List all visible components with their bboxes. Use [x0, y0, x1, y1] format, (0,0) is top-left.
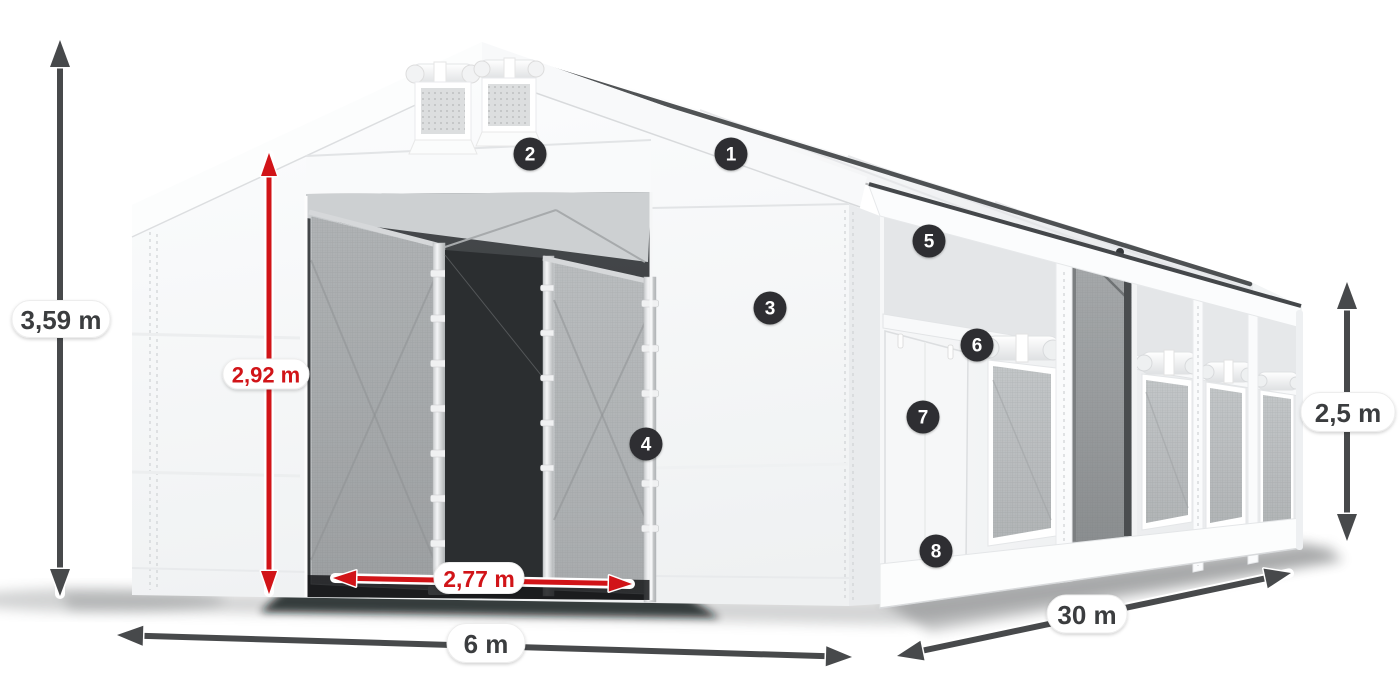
- door-bay-edge: [1072, 241, 1076, 541]
- arrowhead-up: [50, 40, 70, 67]
- interior-gap: [445, 250, 545, 596]
- window-mesh-texture: [993, 366, 1051, 538]
- window-mesh-texture: [1210, 388, 1242, 523]
- side-door-panel: [885, 331, 968, 570]
- callout-badge-2: 2: [514, 138, 547, 171]
- badge-number: 6: [972, 336, 983, 357]
- roll-end-cap: [406, 65, 424, 83]
- pole-clamp: [431, 360, 448, 367]
- gate-mesh-texture: [311, 216, 434, 590]
- vent-sill: [409, 140, 477, 154]
- door-strap: [898, 334, 903, 348]
- pole-clamp: [431, 450, 448, 457]
- callout-badge-4: 4: [630, 428, 663, 461]
- dimension-label-entrance-width: 2,77 m: [443, 566, 515, 592]
- pole-clamp: [431, 315, 448, 322]
- callout-badge-3: 3: [754, 292, 787, 325]
- callout-badge-6: 6: [961, 329, 994, 362]
- callout-badge-8: 8: [920, 535, 953, 568]
- badge-number: 3: [765, 299, 776, 320]
- pole-clamp: [431, 495, 448, 502]
- pole-clamp: [431, 540, 448, 547]
- window-mesh-texture: [1263, 395, 1291, 525]
- badge-number: 2: [525, 145, 536, 166]
- corner-wrap: [849, 204, 880, 606]
- roll-end-cap: [528, 61, 544, 77]
- arrowhead-left: [117, 626, 143, 646]
- arrowhead-down: [1337, 514, 1357, 541]
- gate-mesh-texture: [554, 262, 646, 594]
- vent-mesh-texture: [488, 84, 530, 126]
- dimension-side-wall-height: 2,5 m: [1301, 282, 1395, 541]
- inner-gate-left: [309, 212, 450, 595]
- diagram-canvas: 3,59 m 2,92 m 2,77 m 6 m 30 m: [0, 0, 1400, 700]
- pole-strip: [1132, 258, 1137, 536]
- door-strap: [948, 345, 953, 359]
- pole-clamp: [431, 405, 448, 412]
- gable-vent-window: [406, 62, 480, 154]
- roll-strap: [1016, 334, 1028, 362]
- pole-clamp: [431, 270, 448, 277]
- vent-mesh-texture: [421, 88, 465, 134]
- tent-dimension-diagram: 3,59 m 2,92 m 2,77 m 6 m 30 m: [0, 0, 1400, 700]
- callout-badge-7: 7: [907, 401, 940, 434]
- badge-number: 8: [931, 542, 942, 563]
- pole-strip: [1056, 262, 1072, 583]
- callout-badge-5: 5: [913, 225, 946, 258]
- roll-end-cap: [474, 61, 490, 77]
- badge-number: 7: [918, 408, 929, 429]
- open-door-mesh-texture: [1072, 241, 1132, 543]
- roll-strap: [1224, 360, 1233, 383]
- arrowhead-right: [826, 646, 852, 666]
- dimension-label-front-width: 6 m: [464, 629, 509, 659]
- gable-vent-window: [474, 58, 544, 146]
- door-pole: [1124, 260, 1131, 536]
- dimension-label-length: 30 m: [1057, 600, 1116, 630]
- badge-number: 1: [726, 145, 737, 166]
- dimension-total-height: 3,59 m: [12, 40, 110, 596]
- dimension-label-total-height: 3,59 m: [21, 305, 102, 335]
- side-open-door-bay: [1072, 241, 1132, 543]
- arrowhead-up: [1337, 282, 1357, 309]
- far-corner-pole: [1296, 310, 1303, 550]
- dimension-label-entrance-height: 2,92 m: [232, 363, 301, 388]
- entrance-opening: [306, 192, 659, 602]
- badge-number: 5: [924, 232, 935, 253]
- dimension-front-width: 6 m: [117, 624, 852, 667]
- badge-number: 4: [641, 435, 652, 456]
- dimension-label-side-wall-height: 2,5 m: [1315, 398, 1382, 428]
- roll-strap: [1164, 350, 1174, 375]
- roll-end-cap: [1136, 355, 1152, 371]
- callout-badge-1: 1: [715, 138, 748, 171]
